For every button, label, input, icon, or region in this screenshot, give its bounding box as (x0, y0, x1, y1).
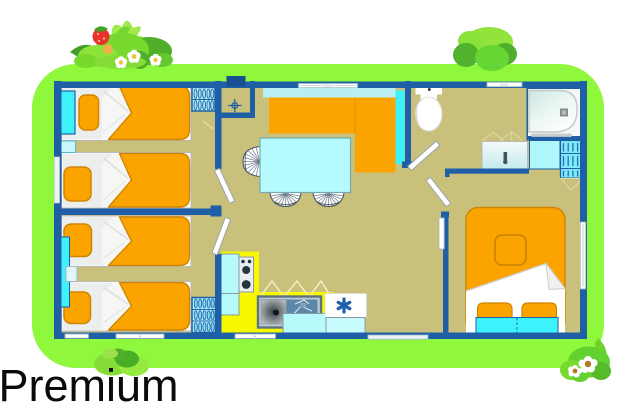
svg-text:Premium: Premium (0, 360, 179, 408)
